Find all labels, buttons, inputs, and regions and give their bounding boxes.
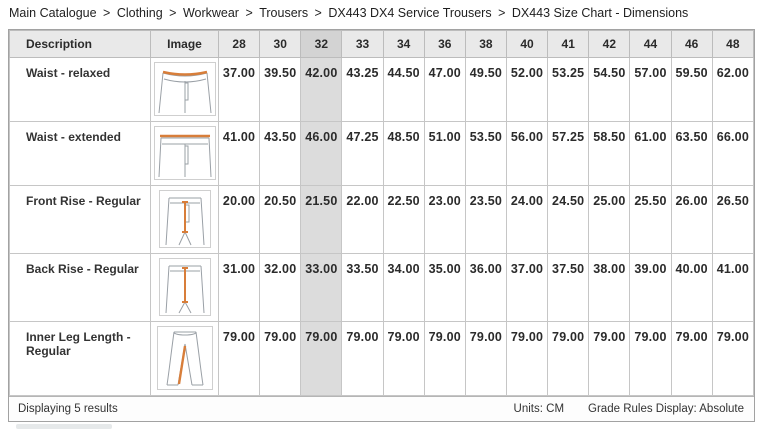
size-value-cell: 46.00	[301, 122, 342, 186]
breadcrumb-separator: >	[492, 6, 512, 20]
column-header-size-34: 34	[383, 31, 424, 58]
trousers-front-rise-thumbnail	[159, 190, 211, 248]
units-display: Units: CM	[514, 403, 564, 415]
row-image-cell	[151, 186, 219, 254]
grade-rules-display: Grade Rules Display: Absolute	[588, 403, 744, 415]
size-value-cell: 37.00	[219, 58, 260, 122]
column-header-image: Image	[151, 31, 219, 58]
size-value-cell: 53.50	[465, 122, 506, 186]
size-value-cell: 56.00	[506, 122, 547, 186]
size-value-cell: 37.50	[548, 254, 589, 322]
table-row: Back Rise - Regular31.0032.0033.0033.503…	[10, 254, 754, 322]
table-row: Inner Leg Length - Regular79.0079.0079.0…	[10, 322, 754, 396]
size-value-cell: 32.00	[260, 254, 301, 322]
breadcrumb: Main Catalogue > Clothing > Workwear > T…	[0, 0, 762, 29]
size-value-cell: 66.00	[712, 122, 753, 186]
size-value-cell: 54.50	[589, 58, 630, 122]
size-value-cell: 57.25	[548, 122, 589, 186]
size-value-cell: 59.50	[671, 58, 712, 122]
row-description: Waist - relaxed	[10, 58, 151, 122]
row-image-cell	[151, 122, 219, 186]
size-value-cell: 33.00	[301, 254, 342, 322]
trousers-waist-relaxed-icon	[156, 64, 214, 114]
size-value-cell: 47.00	[424, 58, 465, 122]
column-header-size-28: 28	[219, 31, 260, 58]
breadcrumb-item-dx443-dx4-service-trousers[interactable]: DX443 DX4 Service Trousers	[328, 6, 491, 20]
row-image-cell	[151, 254, 219, 322]
size-value-cell: 57.00	[630, 58, 671, 122]
column-header-size-46: 46	[671, 31, 712, 58]
trousers-inner-leg-icon	[159, 328, 211, 388]
breadcrumb-separator: >	[97, 6, 117, 20]
table-row: Front Rise - Regular20.0020.5021.5022.00…	[10, 186, 754, 254]
trousers-front-rise-icon	[161, 192, 209, 246]
size-value-cell: 79.00	[301, 322, 342, 396]
header-row: DescriptionImage283032333436384041424446…	[10, 31, 754, 58]
size-value-cell: 22.00	[342, 186, 383, 254]
size-value-cell: 79.00	[219, 322, 260, 396]
breadcrumb-item-main-catalogue[interactable]: Main Catalogue	[9, 6, 97, 20]
size-value-cell: 34.00	[383, 254, 424, 322]
size-value-cell: 35.00	[424, 254, 465, 322]
footer-settings: Units: CM Grade Rules Display: Absolute	[514, 403, 744, 415]
size-value-cell: 79.00	[506, 322, 547, 396]
breadcrumb-item-workwear[interactable]: Workwear	[183, 6, 239, 20]
size-value-cell: 58.50	[589, 122, 630, 186]
size-value-cell: 79.00	[630, 322, 671, 396]
trousers-back-rise-icon	[161, 260, 209, 314]
size-value-cell: 26.00	[671, 186, 712, 254]
row-image-cell	[151, 322, 219, 396]
breadcrumb-separator: >	[163, 6, 183, 20]
trousers-waist-extended-thumbnail	[154, 126, 216, 180]
results-count: Displaying 5 results	[18, 403, 118, 415]
size-value-cell: 43.25	[342, 58, 383, 122]
row-image-cell	[151, 58, 219, 122]
breadcrumb-item-dx443-size-chart-dimensions: DX443 Size Chart - Dimensions	[512, 6, 688, 20]
size-value-cell: 79.00	[589, 322, 630, 396]
size-value-cell: 63.50	[671, 122, 712, 186]
size-value-cell: 41.00	[219, 122, 260, 186]
size-value-cell: 79.00	[260, 322, 301, 396]
size-value-cell: 79.00	[342, 322, 383, 396]
size-value-cell: 23.50	[465, 186, 506, 254]
size-value-cell: 40.00	[671, 254, 712, 322]
size-value-cell: 25.00	[589, 186, 630, 254]
size-value-cell: 20.00	[219, 186, 260, 254]
column-header-description: Description	[10, 31, 151, 58]
size-value-cell: 79.00	[383, 322, 424, 396]
table-body: Waist - relaxed37.0039.5042.0043.2544.50…	[10, 58, 754, 396]
column-header-size-48: 48	[712, 31, 753, 58]
size-value-cell: 20.50	[260, 186, 301, 254]
size-value-cell: 36.00	[465, 254, 506, 322]
size-value-cell: 53.25	[548, 58, 589, 122]
trousers-inner-leg-thumbnail	[157, 326, 213, 390]
breadcrumb-item-clothing[interactable]: Clothing	[117, 6, 163, 20]
size-value-cell: 37.00	[506, 254, 547, 322]
size-value-cell: 79.00	[671, 322, 712, 396]
row-description: Inner Leg Length - Regular	[10, 322, 151, 396]
column-header-size-38: 38	[465, 31, 506, 58]
size-value-cell: 48.50	[383, 122, 424, 186]
table-footer: Displaying 5 results Units: CM Grade Rul…	[9, 396, 754, 421]
row-description: Front Rise - Regular	[10, 186, 151, 254]
table-shadow	[16, 424, 112, 429]
table-header: DescriptionImage283032333436384041424446…	[10, 31, 754, 58]
size-value-cell: 52.00	[506, 58, 547, 122]
size-value-cell: 43.50	[260, 122, 301, 186]
trousers-waist-extended-icon	[156, 128, 214, 178]
size-value-cell: 41.00	[712, 254, 753, 322]
column-header-size-42: 42	[589, 31, 630, 58]
size-value-cell: 44.50	[383, 58, 424, 122]
column-header-size-44: 44	[630, 31, 671, 58]
size-value-cell: 47.25	[342, 122, 383, 186]
size-value-cell: 22.50	[383, 186, 424, 254]
table-row: Waist - relaxed37.0039.5042.0043.2544.50…	[10, 58, 754, 122]
size-value-cell: 79.00	[465, 322, 506, 396]
size-value-cell: 21.50	[301, 186, 342, 254]
trousers-back-rise-thumbnail	[159, 258, 211, 316]
row-description: Waist - extended	[10, 122, 151, 186]
size-value-cell: 62.00	[712, 58, 753, 122]
size-value-cell: 79.00	[548, 322, 589, 396]
trousers-waist-relaxed-thumbnail	[154, 62, 216, 116]
breadcrumb-separator: >	[308, 6, 328, 20]
breadcrumb-separator: >	[239, 6, 259, 20]
size-value-cell: 51.00	[424, 122, 465, 186]
size-chart-table: DescriptionImage283032333436384041424446…	[9, 30, 754, 396]
size-value-cell: 31.00	[219, 254, 260, 322]
size-value-cell: 61.00	[630, 122, 671, 186]
size-value-cell: 39.00	[630, 254, 671, 322]
size-value-cell: 26.50	[712, 186, 753, 254]
size-value-cell: 79.00	[424, 322, 465, 396]
table-row: Waist - extended41.0043.5046.0047.2548.5…	[10, 122, 754, 186]
column-header-size-30: 30	[260, 31, 301, 58]
column-header-size-40: 40	[506, 31, 547, 58]
size-value-cell: 39.50	[260, 58, 301, 122]
size-value-cell: 38.00	[589, 254, 630, 322]
size-value-cell: 79.00	[712, 322, 753, 396]
size-value-cell: 42.00	[301, 58, 342, 122]
size-value-cell: 24.00	[506, 186, 547, 254]
size-value-cell: 49.50	[465, 58, 506, 122]
column-header-size-33: 33	[342, 31, 383, 58]
column-header-size-32: 32	[301, 31, 342, 58]
size-value-cell: 24.50	[548, 186, 589, 254]
size-value-cell: 23.00	[424, 186, 465, 254]
size-chart-panel: DescriptionImage283032333436384041424446…	[8, 29, 755, 422]
breadcrumb-item-trousers[interactable]: Trousers	[259, 6, 308, 20]
size-value-cell: 33.50	[342, 254, 383, 322]
size-value-cell: 25.50	[630, 186, 671, 254]
row-description: Back Rise - Regular	[10, 254, 151, 322]
column-header-size-36: 36	[424, 31, 465, 58]
column-header-size-41: 41	[548, 31, 589, 58]
